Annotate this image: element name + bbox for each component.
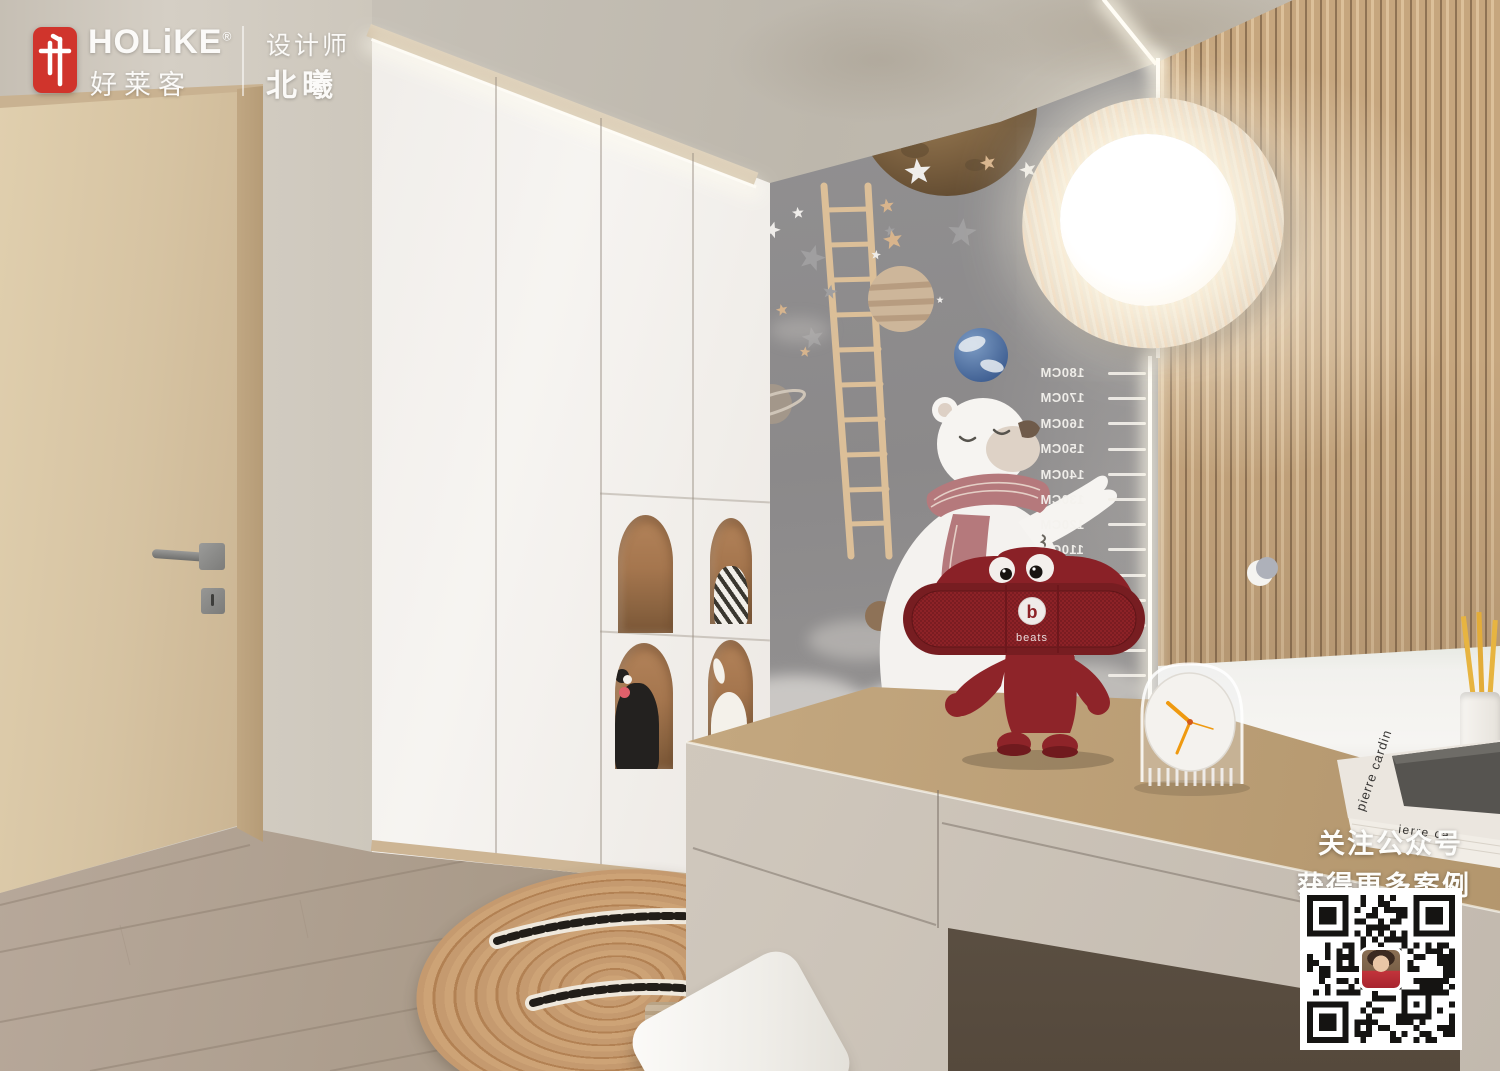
brand-divider: [242, 26, 244, 96]
qr-code: [1300, 888, 1462, 1050]
beats-logo-letter: b: [1027, 602, 1038, 622]
designer-name: 北曦: [266, 60, 338, 105]
rendered-room-image: 180CM170CM160CM150CM140CM130CM120CM110CM…: [0, 0, 1500, 1071]
beats-speaker-figure: b beats: [903, 547, 1145, 770]
foreground-objects: b beats pierre cardin ierre ca: [0, 0, 1500, 1071]
qr-avatar: [1359, 947, 1403, 991]
promo-block: 关注公众号 获得更多案例: [1290, 820, 1490, 1060]
brand-name-cn: 好莱客: [90, 63, 192, 102]
holike-logo-mark: [33, 27, 77, 93]
acrylic-clock: [1134, 664, 1250, 796]
promo-line-1: 关注公众号: [1318, 822, 1463, 861]
brand-name-en: HOLiKE®: [88, 23, 232, 62]
designer-label: 设计师: [266, 26, 350, 62]
beats-brand-text: beats: [1016, 632, 1048, 644]
holike-logo-glyph: [33, 27, 77, 93]
brand-header: HOLiKE® 好莱客 设计师 北曦: [30, 20, 450, 110]
registered-mark: ®: [222, 30, 232, 44]
